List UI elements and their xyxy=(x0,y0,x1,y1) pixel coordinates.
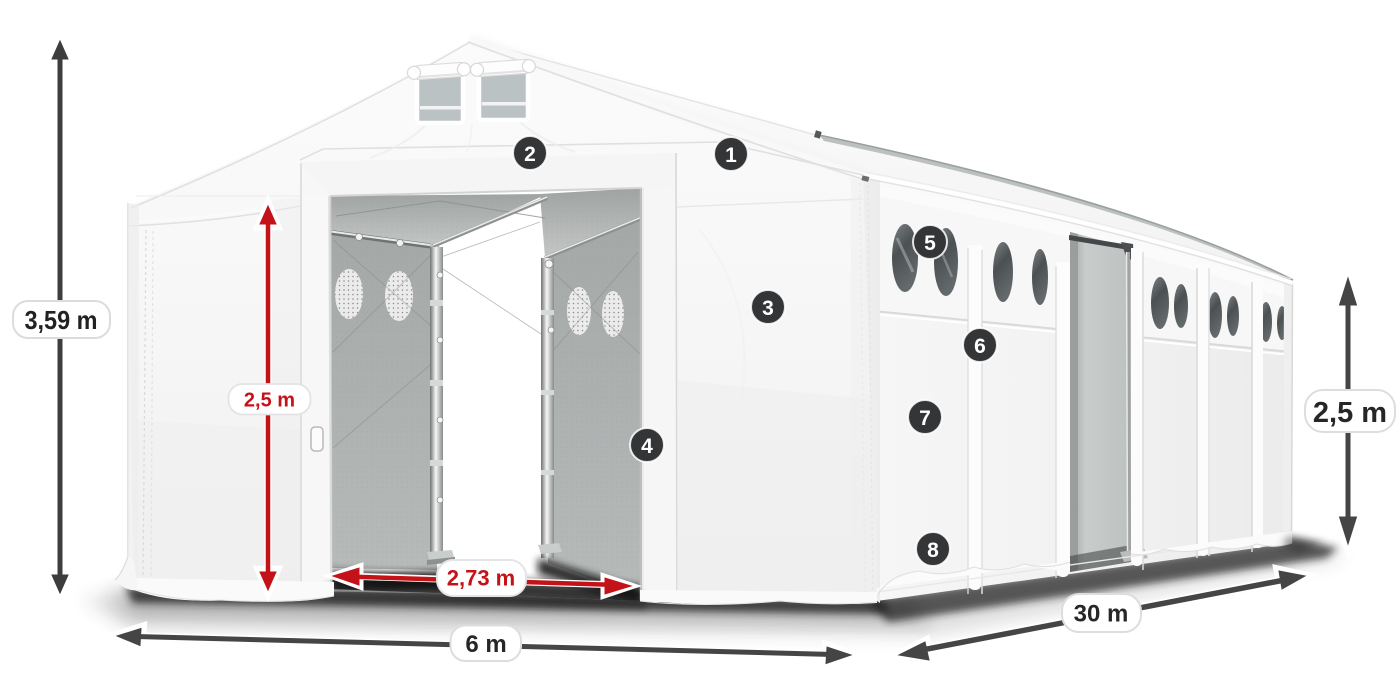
svg-text:2,5 m: 2,5 m xyxy=(1313,397,1387,429)
svg-text:7: 7 xyxy=(919,407,931,430)
svg-text:1: 1 xyxy=(725,144,737,167)
svg-text:3,59 m: 3,59 m xyxy=(25,305,98,335)
svg-text:2: 2 xyxy=(524,143,536,166)
svg-text:30 m: 30 m xyxy=(1074,601,1129,628)
svg-text:3: 3 xyxy=(762,297,774,320)
svg-text:2,73 m: 2,73 m xyxy=(447,566,516,591)
svg-text:4: 4 xyxy=(641,435,653,458)
svg-text:8: 8 xyxy=(927,539,939,562)
svg-text:6: 6 xyxy=(974,335,986,358)
svg-text:6 m: 6 m xyxy=(465,631,506,658)
svg-text:5: 5 xyxy=(924,232,936,255)
svg-text:2,5 m: 2,5 m xyxy=(244,390,295,412)
